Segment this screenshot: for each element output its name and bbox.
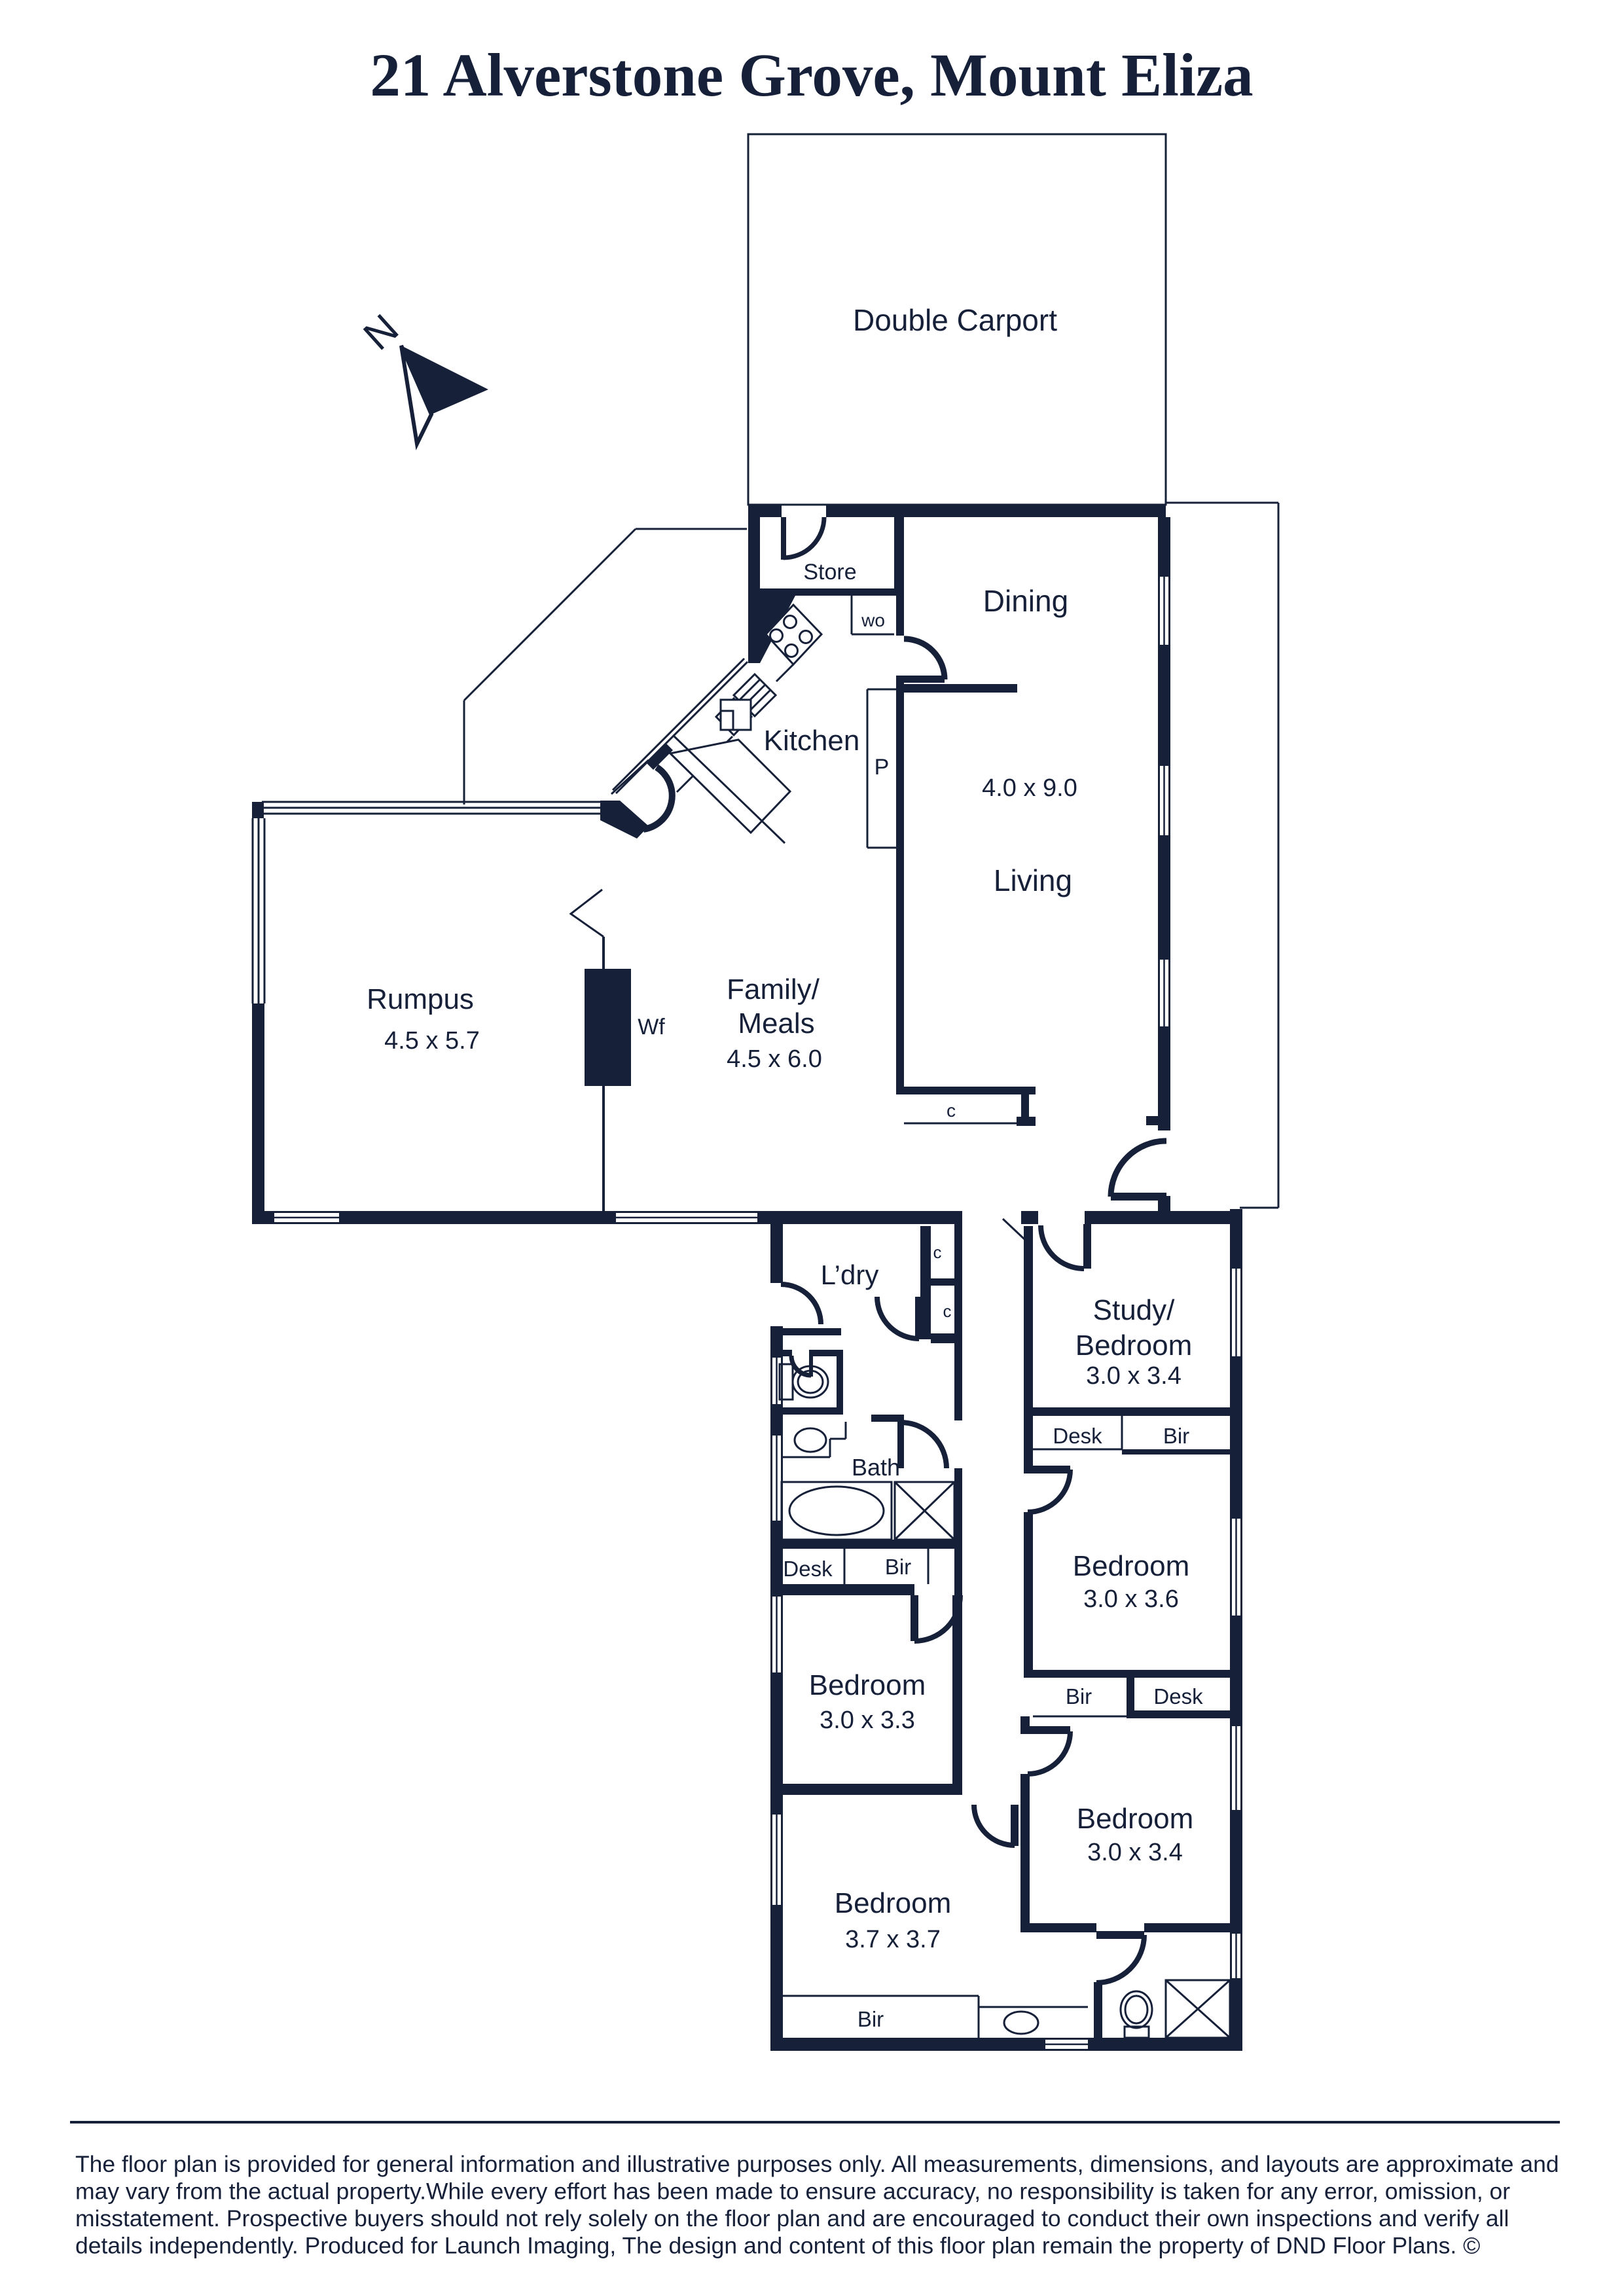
svg-text:may vary from the actual prope: may vary from the actual property.While …	[75, 2178, 1510, 2205]
svg-text:Desk: Desk	[783, 1557, 833, 1581]
svg-text:The floor plan is provided for: The floor plan is provided for general i…	[75, 2151, 1559, 2177]
svg-text:4.5 x 5.7: 4.5 x 5.7	[384, 1027, 480, 1055]
svg-text:3.0 x 3.4: 3.0 x 3.4	[1086, 1362, 1182, 1390]
svg-text:Bir: Bir	[1163, 1424, 1189, 1448]
svg-text:4.5 x 6.0: 4.5 x 6.0	[727, 1045, 822, 1073]
svg-text:Bedroom: Bedroom	[1073, 1550, 1190, 1582]
svg-text:L’dry: L’dry	[821, 1259, 879, 1290]
svg-text:Study/: Study/	[1093, 1294, 1176, 1326]
svg-text:21 Alverstone Grove, Mount Eli: 21 Alverstone Grove, Mount Eliza	[370, 42, 1253, 109]
svg-text:Bedroom: Bedroom	[809, 1669, 926, 1701]
svg-text:Bir: Bir	[1066, 1684, 1092, 1708]
svg-text:Store: Store	[803, 560, 856, 585]
svg-text:Dining: Dining	[983, 584, 1068, 618]
svg-text:Bir: Bir	[885, 1555, 911, 1579]
svg-text:Rumpus: Rumpus	[367, 983, 474, 1015]
svg-text:Double Carport: Double Carport	[853, 303, 1057, 337]
svg-text:Kitchen: Kitchen	[764, 725, 860, 757]
svg-text:3.0 x 3.4: 3.0 x 3.4	[1087, 1839, 1183, 1866]
svg-text:Bath: Bath	[852, 1454, 900, 1481]
svg-text:c: c	[943, 1301, 952, 1321]
svg-text:P: P	[875, 755, 890, 780]
svg-text:Wf: Wf	[638, 1015, 665, 1039]
svg-text:Family/: Family/	[727, 973, 820, 1005]
svg-text:Living: Living	[994, 863, 1072, 897]
svg-text:details independently. Produc: details independently. Produced for Laun…	[75, 2233, 1480, 2259]
svg-text:Desk: Desk	[1053, 1424, 1102, 1448]
svg-text:3.7 x 3.7: 3.7 x 3.7	[845, 1926, 941, 1953]
svg-text:c: c	[947, 1100, 956, 1121]
svg-text:Meals: Meals	[738, 1007, 814, 1039]
svg-text:3.0 x 3.6: 3.0 x 3.6	[1083, 1585, 1179, 1613]
svg-text:Bedroom: Bedroom	[1077, 1803, 1194, 1835]
svg-text:3.0 x 3.3: 3.0 x 3.3	[820, 1707, 915, 1734]
svg-text:Bir: Bir	[857, 2007, 884, 2031]
svg-text:Bedroom: Bedroom	[1075, 1329, 1193, 1362]
svg-text:wo: wo	[861, 610, 885, 630]
svg-text:Bedroom: Bedroom	[835, 1887, 952, 1919]
svg-text:Desk: Desk	[1153, 1684, 1203, 1708]
svg-text:c: c	[933, 1242, 942, 1262]
svg-text:4.0 x 9.0: 4.0 x 9.0	[982, 774, 1077, 802]
svg-text:misstatement. Prospective buye: misstatement. Prospective buyers should …	[75, 2205, 1509, 2232]
